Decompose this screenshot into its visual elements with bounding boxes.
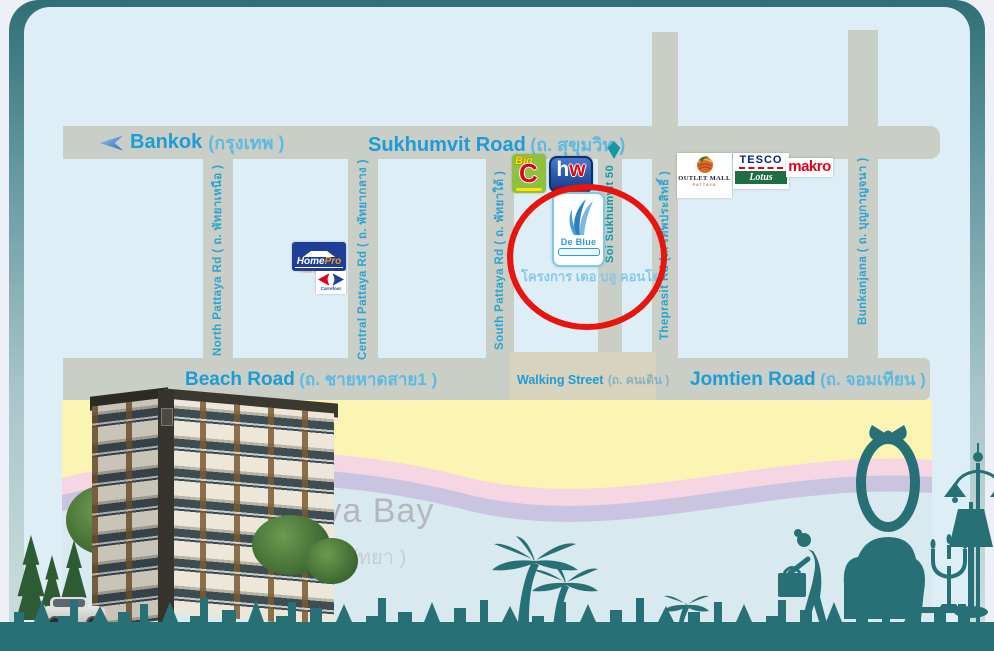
beach-label-thai: (ถ. ชายหาดสาย1 )	[299, 370, 437, 389]
carrefour-logo: Carrefour	[316, 271, 346, 294]
big-c-c-text: C	[519, 158, 538, 189]
theprasit-road-label: Theprasit Rd (ถ. เทพประสิทธิ์ )	[652, 170, 678, 340]
beach-road-label: Beach Road (ถ. ชายหาดสาย1 )	[185, 366, 437, 393]
de-blue-logo: De Blue	[552, 192, 605, 267]
outlet-mall-city: PATTAYA	[677, 182, 732, 187]
homepro-pro-text: Pro	[325, 256, 342, 267]
walking-label-en: Walking Street	[517, 373, 603, 387]
homepro-home-text: Home	[297, 256, 325, 267]
outlet-mall-logo: OUTLET MALL PATTAYA	[677, 153, 732, 198]
building-logo-plate	[161, 408, 173, 426]
homeworks-h-text: h	[556, 158, 569, 181]
de-blue-banner	[558, 248, 600, 256]
tesco-text: TESCO	[735, 155, 787, 166]
big-c-logo: Big C	[512, 154, 546, 193]
tesco-dashes	[739, 167, 783, 169]
south-pattaya-road-label: South Pattaya Rd ( ถ. พัทยาใต้ )	[486, 164, 514, 356]
homepro-logo: HomePro Home is HomePro	[292, 242, 346, 271]
de-blue-name: De Blue	[554, 237, 603, 247]
carrefour-arrows-icon	[318, 273, 344, 286]
walking-street-label: Walking Street (ถ. คนเดิน )	[517, 371, 669, 390]
outlet-mall-globe-icon	[695, 155, 715, 175]
de-blue-wave-icon	[562, 197, 596, 237]
central-pattaya-road-label: Central Pattaya Rd ( ถ. พัทยากลาง )	[348, 164, 378, 356]
de-blue-thai-caption: โครงการ เดอ บลู คอนโด	[521, 266, 661, 287]
bangkok-arrow-icon	[96, 133, 124, 153]
walking-label-thai: (ถ. คนเดิน )	[608, 373, 670, 387]
homeworks-logo: hw	[549, 156, 593, 193]
beach-label-en: Beach Road	[185, 369, 295, 390]
outlet-mall-name: OUTLET MALL	[677, 175, 732, 182]
bangkok-direction-label: Bankok (กรุงเทพ )	[96, 128, 284, 157]
tesco-lotus-logo: TESCO Lotus	[733, 153, 789, 189]
map-screenshot: Pattaya Bay ( อ่าวพัทยา ) Bankok (กรุงเท…	[0, 0, 994, 651]
sukhumvit-label-en: Sukhumvit Road	[368, 134, 526, 156]
homeworks-w-text: w	[569, 158, 585, 181]
skyline-silhouette	[0, 536, 994, 651]
mirror-icon	[861, 439, 915, 527]
carrefour-label: Carrefour	[316, 286, 346, 291]
lotus-text: Lotus	[735, 171, 787, 184]
jomtien-label-en: Jomtien Road	[690, 369, 816, 390]
bangkok-label-thai: (กรุงเทพ )	[208, 128, 284, 157]
jomtien-label-thai: (ถ. จอมเทียน )	[820, 370, 926, 389]
makro-logo: makro	[786, 158, 833, 177]
bunkanjana-road-label: Bunkanjana ( ถ. บุญกาญจนา )	[848, 162, 878, 320]
big-c-strip	[516, 188, 542, 191]
bangkok-label: Bankok	[130, 131, 202, 154]
makro-text: makro	[786, 158, 833, 176]
north-pattaya-road-label: North Pattaya Rd ( ถ. พัทยาเหนือ )	[203, 164, 233, 356]
jomtien-road-label: Jomtien Road (ถ. จอมเทียน )	[690, 366, 926, 393]
sukhumvit-road-label: Sukhumvit Road (ถ. สุขุมวิท )	[368, 130, 625, 159]
